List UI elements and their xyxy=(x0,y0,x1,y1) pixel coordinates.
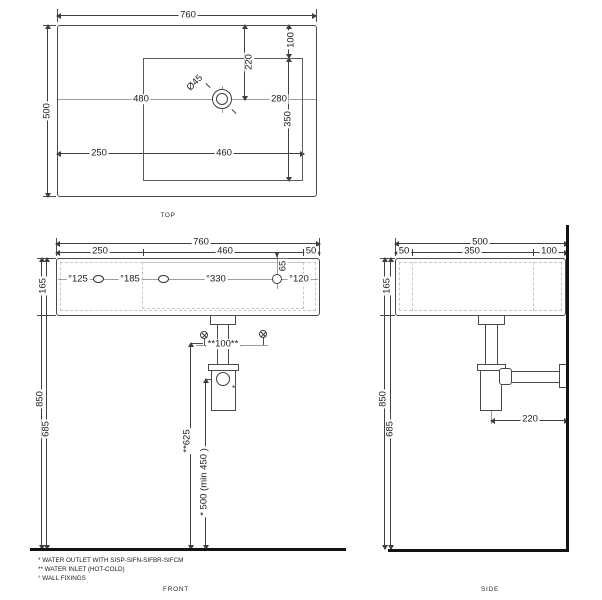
ext-line xyxy=(240,345,268,346)
fixing-hole xyxy=(272,274,282,284)
dim-350: 350 xyxy=(463,246,482,256)
dim-685: 685 xyxy=(41,420,51,439)
drain-pipe xyxy=(485,324,498,365)
view-label-side: SIDE xyxy=(481,586,499,593)
dim-250: 250 xyxy=(91,246,110,256)
dim-100: 100 xyxy=(540,246,559,256)
dim-fixing-125: °125 xyxy=(67,274,90,284)
dim-65: 65 xyxy=(278,259,288,273)
drain-hole-inner xyxy=(216,93,228,105)
view-label-front: FRONT xyxy=(163,586,189,593)
dim-100: 100 xyxy=(286,31,296,50)
dim-480: 480 xyxy=(132,94,151,104)
dim-line-165-685 xyxy=(390,258,391,549)
dim-tick xyxy=(386,315,394,316)
trap-outlet xyxy=(216,372,230,386)
dim-685: 685 xyxy=(385,420,395,439)
note-water-outlet: * WATER OUTLET WITH SISP-SIFN-SIFBR-SIFC… xyxy=(38,558,183,564)
dim-outlet-500: * 500 (min 450 ) xyxy=(199,447,209,518)
dim-tick xyxy=(533,249,534,256)
dim-250: 250 xyxy=(90,148,109,158)
note-wall-fixings: ° WALL FIXINGS xyxy=(38,576,86,582)
floor-line xyxy=(388,549,569,552)
dim-500: 500 xyxy=(42,102,52,121)
dim-165: 165 xyxy=(38,277,48,296)
basin-outline-side xyxy=(395,258,566,316)
dim-50: 50 xyxy=(304,246,318,256)
dim-tick xyxy=(412,249,413,256)
dim-625: **625 xyxy=(182,428,192,454)
dim-220: 220 xyxy=(244,53,254,72)
dim-50: 50 xyxy=(397,246,411,256)
dim-tick xyxy=(143,249,144,256)
dim-line-760 xyxy=(56,243,320,244)
dim-arrow-down xyxy=(275,253,279,258)
dim-220: 220 xyxy=(521,414,540,424)
water-inlet-symbol-right xyxy=(259,330,267,338)
dim-760: 760 xyxy=(179,10,198,20)
outlet-mark: * xyxy=(232,385,235,393)
water-inlet-symbol-left xyxy=(200,331,208,339)
fixing-slot xyxy=(158,275,169,283)
dim-850: 850 xyxy=(35,390,45,409)
note-water-inlet: ** WATER INLET (HOT-COLD) xyxy=(38,567,125,573)
dim-760: 760 xyxy=(192,237,211,247)
dim-inlet-100: **100** xyxy=(206,339,240,349)
fixing-slot xyxy=(93,275,104,283)
dim-tick xyxy=(42,315,50,316)
floor-line xyxy=(30,548,346,551)
dim-165: 165 xyxy=(382,277,392,296)
wall-line xyxy=(566,225,569,552)
waste-pipe-horizontal xyxy=(511,371,562,383)
bowl-outline-top xyxy=(143,58,303,181)
dim-460: 460 xyxy=(216,246,235,256)
dim-850: 850 xyxy=(378,390,388,409)
view-label-top: TOP xyxy=(160,212,175,219)
dim-fixing-120: °120 xyxy=(288,274,311,284)
dim-280: 280 xyxy=(270,94,289,104)
dim-350: 350 xyxy=(283,110,293,129)
dim-fixing-330: °330 xyxy=(205,274,228,284)
dim-460: 460 xyxy=(215,148,234,158)
dim-line-165-685 xyxy=(46,258,47,549)
dim-fixing-185: °185 xyxy=(119,274,142,284)
